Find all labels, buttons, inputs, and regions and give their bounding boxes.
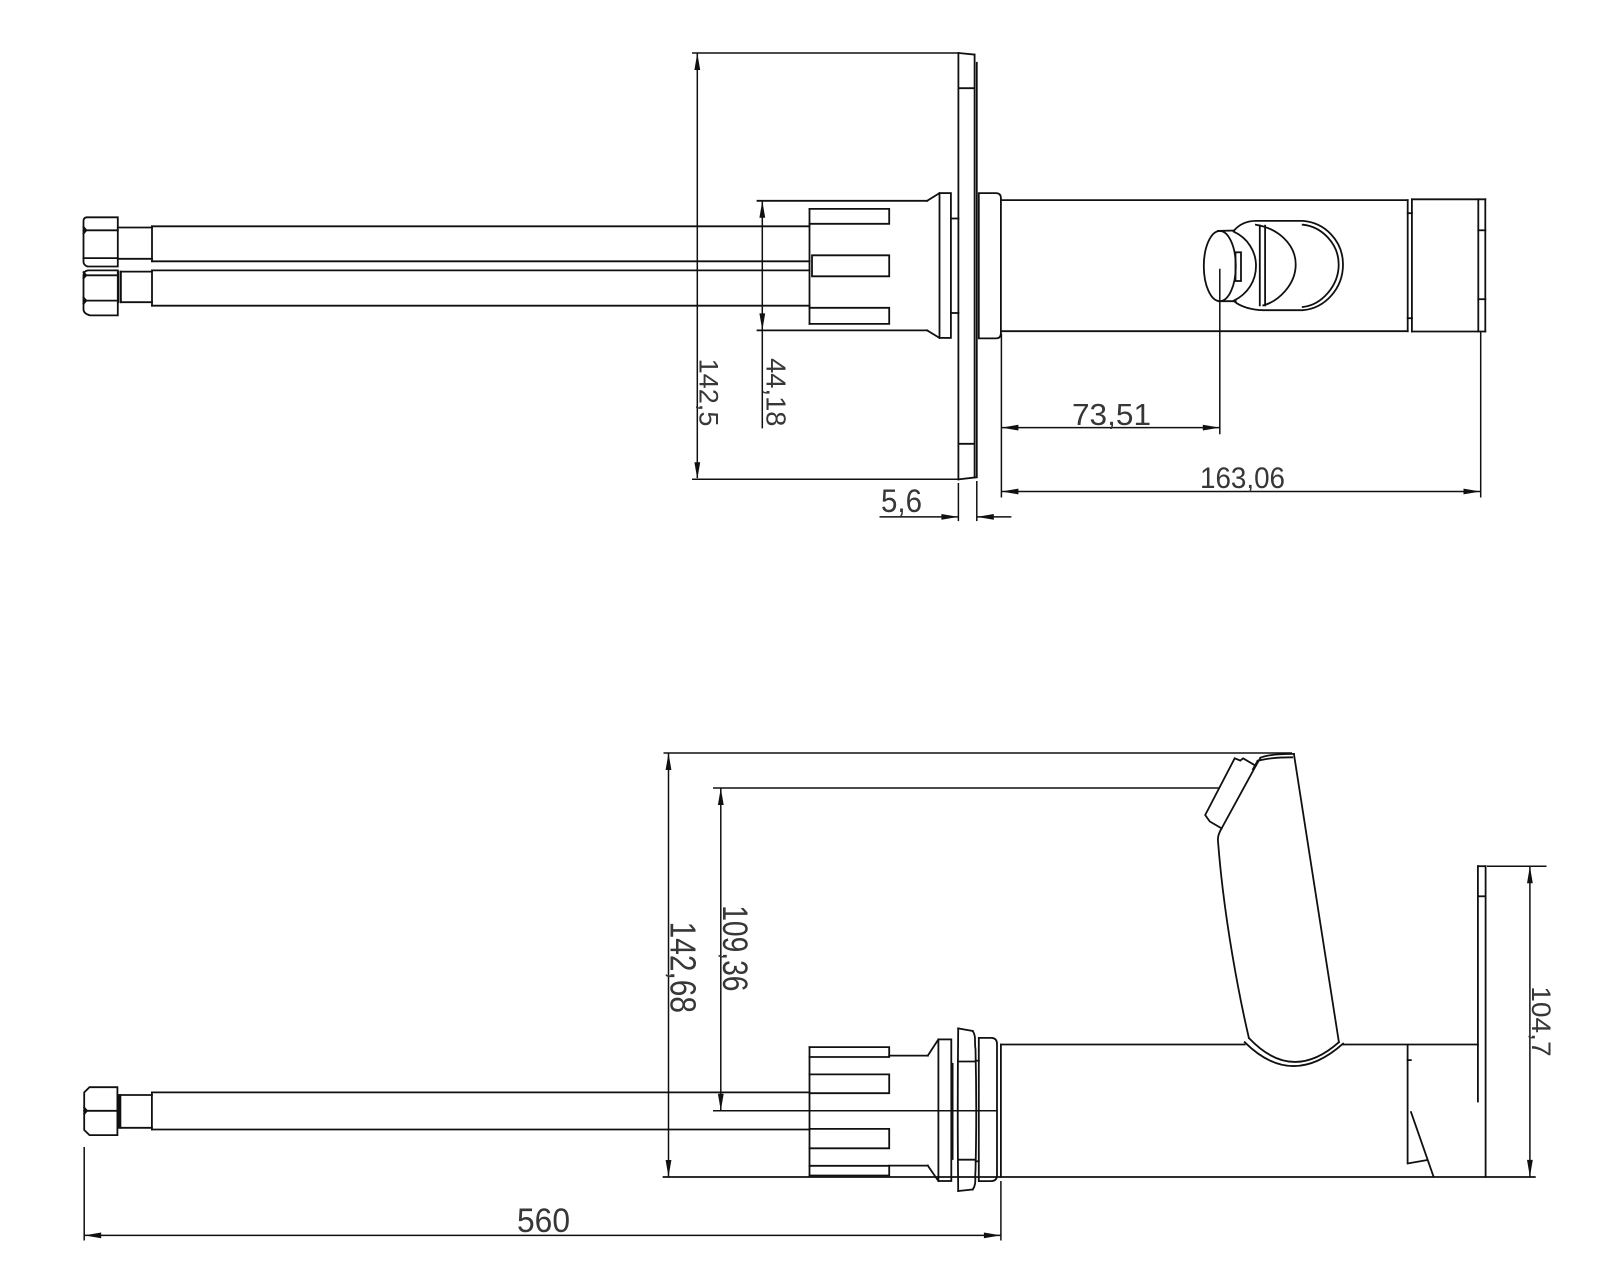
svg-text:560: 560 bbox=[517, 1202, 570, 1240]
svg-text:142,68: 142,68 bbox=[663, 922, 704, 1013]
svg-text:73,51: 73,51 bbox=[1072, 397, 1151, 432]
svg-text:44,18: 44,18 bbox=[761, 358, 792, 426]
svg-text:142,5: 142,5 bbox=[694, 359, 724, 427]
svg-text:104,7: 104,7 bbox=[1526, 986, 1556, 1056]
svg-text:109,36: 109,36 bbox=[715, 905, 754, 991]
svg-text:163,06: 163,06 bbox=[1200, 462, 1285, 495]
svg-text:5,6: 5,6 bbox=[881, 483, 922, 519]
